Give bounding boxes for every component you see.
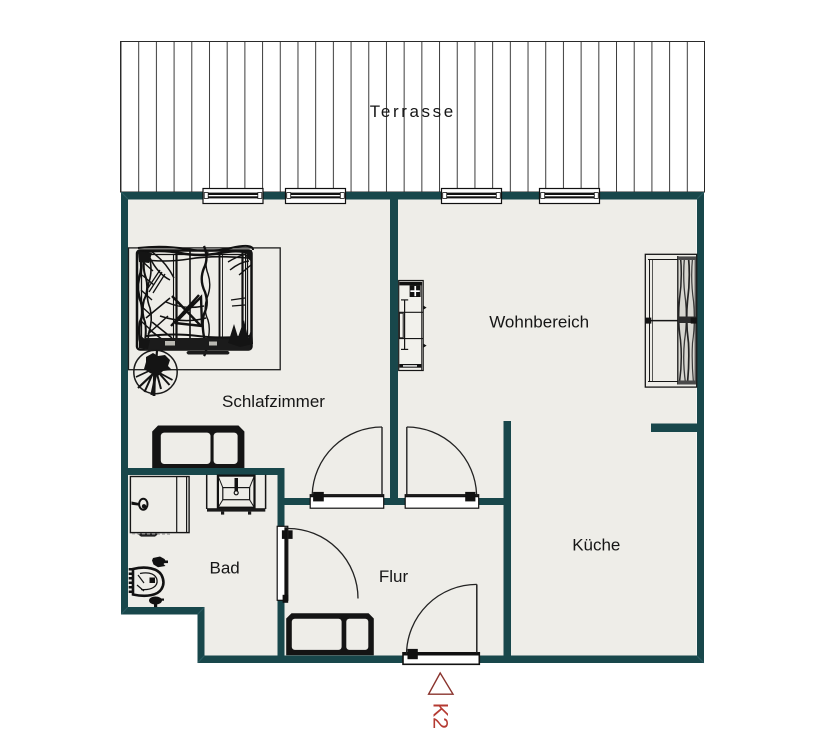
svg-text:Küche: Küche — [572, 535, 620, 554]
svg-text:Flur: Flur — [379, 567, 409, 586]
svg-text:K2: K2 — [429, 703, 453, 729]
svg-text:Terrasse: Terrasse — [370, 102, 456, 121]
svg-text:Schlafzimmer: Schlafzimmer — [222, 392, 325, 411]
svg-text:Bad: Bad — [210, 559, 240, 578]
svg-text:Wohnbereich: Wohnbereich — [489, 313, 589, 332]
